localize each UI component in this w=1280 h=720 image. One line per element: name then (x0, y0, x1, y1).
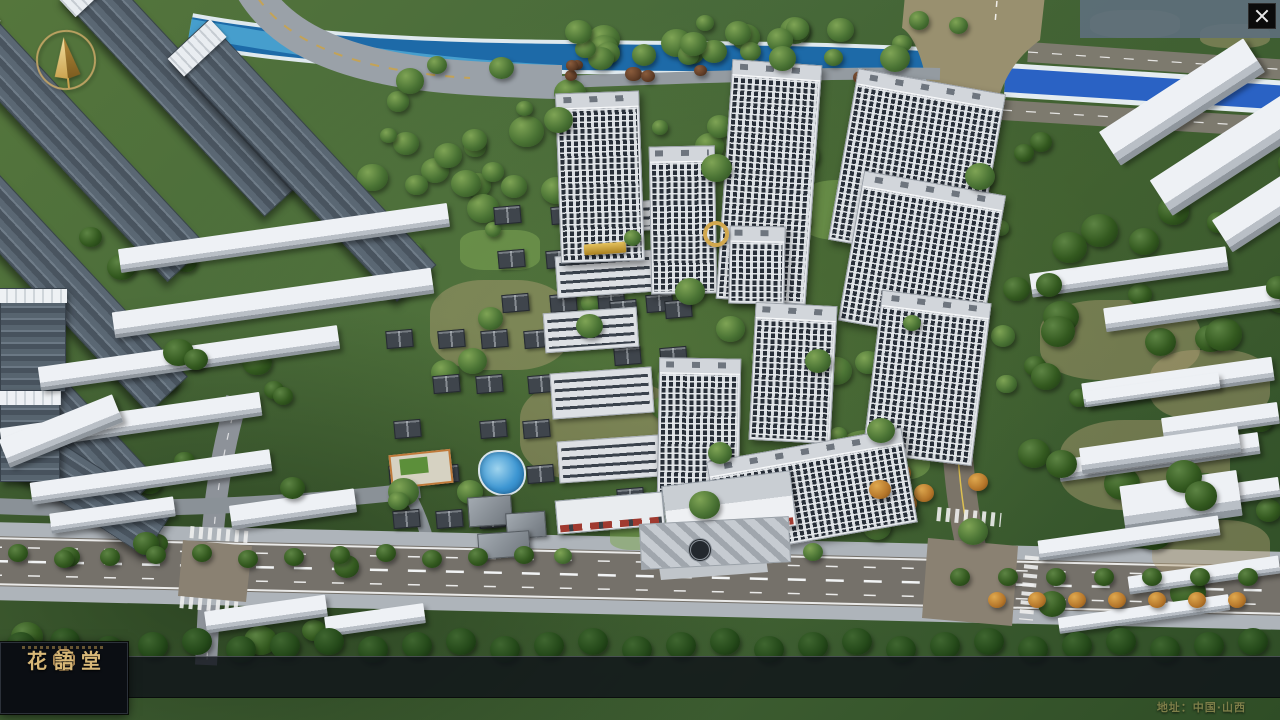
street-tree (710, 628, 740, 655)
tree (867, 418, 895, 443)
tree (1018, 439, 1050, 467)
street-tree (284, 548, 304, 566)
street-tree (468, 548, 488, 566)
tower-roof-cap (0, 391, 61, 405)
street-tree-autumn (1108, 592, 1126, 608)
tree (769, 46, 796, 71)
tree (387, 91, 410, 112)
tree (1046, 450, 1077, 478)
street-tree (534, 632, 564, 659)
tree (624, 230, 642, 246)
tree (708, 442, 732, 464)
tree (280, 477, 305, 499)
courtyard-villa (393, 419, 421, 439)
midrise-block (557, 434, 662, 483)
tree (1145, 328, 1176, 356)
tree (968, 473, 988, 491)
courtyard-villa (613, 346, 641, 366)
street-tree (930, 632, 960, 659)
street-tree (1094, 568, 1114, 586)
tree (1185, 481, 1217, 510)
tree (996, 375, 1016, 393)
tree (827, 18, 854, 42)
street-tree (1238, 568, 1258, 586)
street-tree-autumn (1028, 592, 1046, 608)
street-tree (8, 544, 28, 562)
tree (869, 480, 891, 500)
street-tree (1046, 568, 1066, 586)
courtyard-villa (497, 249, 525, 269)
street-tree (314, 628, 344, 655)
highrise-tower (728, 226, 785, 305)
street-tree (1238, 628, 1268, 655)
street-tree (54, 550, 74, 568)
tree (689, 491, 720, 519)
courtyard-villa (480, 329, 508, 349)
landscape-pool (478, 450, 526, 496)
tree (641, 70, 654, 82)
street-tree (100, 548, 120, 566)
courtyard-villa (479, 419, 507, 439)
courtyard-villa (493, 205, 521, 225)
logo-tagline-microtext (22, 646, 105, 649)
courtyard-villa (437, 329, 465, 349)
tower-roof-cap (556, 92, 638, 110)
street-tree (998, 568, 1018, 586)
street-tree (974, 628, 1004, 655)
bottom-nav-bar: o1 品牌·介绍BRAND SUPPORT o2 区位·价值LOCATION V… (0, 656, 1280, 698)
courtyard-villa (435, 509, 463, 529)
tree (716, 316, 745, 342)
tree (824, 49, 843, 66)
highrise-tower (748, 302, 837, 444)
courtyard-villa (526, 464, 554, 484)
street-tree (402, 632, 432, 659)
courtyard-villa (522, 419, 550, 439)
tree (1003, 277, 1030, 301)
tree (434, 143, 462, 168)
midrise-windows (561, 442, 657, 479)
logo-title: 花語堂 (20, 645, 108, 674)
street-tree (1190, 568, 1210, 586)
compass-needle-tail (67, 78, 70, 88)
street-tree (192, 544, 212, 562)
tree (451, 170, 481, 197)
courtyard-villa (432, 374, 460, 394)
tree (501, 175, 526, 198)
tree (1256, 499, 1280, 522)
tree (880, 45, 910, 72)
street-tree (146, 546, 166, 564)
tree (680, 32, 706, 56)
tree (458, 348, 487, 374)
street-tree (514, 546, 534, 564)
tree (625, 67, 641, 82)
tree (696, 15, 715, 32)
street-tree (270, 632, 300, 659)
street-tree (798, 632, 828, 659)
tree (965, 163, 995, 190)
tree (725, 21, 751, 44)
street-tree (238, 550, 258, 568)
tree (991, 325, 1015, 347)
tree (903, 315, 921, 331)
sales-kiosk-screen: o1 品牌·介绍BRAND SUPPORT o2 区位·价值LOCATION V… (0, 0, 1280, 720)
street-tree (950, 568, 970, 586)
street-tree (138, 632, 168, 659)
midrise-windows (554, 374, 650, 415)
street-tree-autumn (1148, 592, 1166, 608)
tower-windows (731, 243, 782, 302)
street-tree (578, 628, 608, 655)
tower-windows (752, 319, 834, 441)
street-tree (376, 544, 396, 562)
street-tree (666, 632, 696, 659)
close-button[interactable] (1248, 3, 1276, 29)
tree (184, 349, 208, 371)
street-tree-autumn (1228, 592, 1246, 608)
tree (1081, 214, 1118, 247)
tree (462, 129, 486, 151)
courtyard-villa (475, 374, 503, 394)
courtyard-villa (501, 293, 529, 313)
courtyard-villa (385, 329, 413, 349)
project-address-text: 地址：中国·山西 (1157, 699, 1246, 715)
street-tree (182, 628, 212, 655)
project-logo-panel[interactable]: 花語堂 (0, 642, 128, 714)
tree (1205, 318, 1242, 351)
street-tree-autumn (988, 592, 1006, 608)
street-tree (422, 550, 442, 568)
street-tree (446, 628, 476, 655)
tower-roof-cap (0, 289, 67, 303)
tree (909, 11, 930, 30)
street-tree (1142, 568, 1162, 586)
street-tree (1194, 632, 1224, 659)
tree (273, 387, 293, 405)
tree (566, 60, 578, 70)
tree (958, 518, 989, 545)
street-tree (330, 546, 350, 564)
entrance-plaza (639, 516, 791, 570)
courtyard-villa (392, 509, 420, 529)
entrance-gate-circle (688, 538, 712, 562)
midrise-block (550, 366, 655, 419)
tree (1031, 363, 1061, 390)
street-tree-autumn (1068, 592, 1086, 608)
tower-roof-cap (730, 227, 784, 243)
tree (393, 132, 419, 155)
tree (509, 116, 544, 148)
gold-ring-sculpture (703, 221, 729, 247)
tree (405, 175, 428, 195)
tower-roof-cap (660, 358, 740, 374)
street-tree (1106, 628, 1136, 655)
tree (427, 56, 447, 74)
street-tree (1062, 632, 1092, 659)
tree (388, 492, 409, 511)
tree (565, 70, 577, 81)
tree (701, 154, 732, 182)
tree (1036, 273, 1062, 296)
tree (79, 227, 102, 247)
street-tree-autumn (1188, 592, 1206, 608)
street-tree (842, 628, 872, 655)
tree (478, 307, 503, 329)
tree (396, 68, 425, 94)
clubhouse-roof-garden (399, 457, 429, 476)
tree (803, 543, 823, 561)
